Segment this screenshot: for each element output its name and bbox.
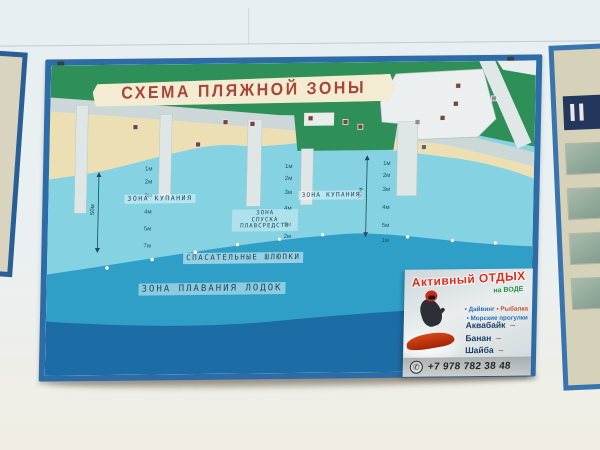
- depth-marker: 3м: [284, 190, 292, 196]
- ad-price-item: Шайба–: [465, 344, 515, 357]
- kiosk-marker: [358, 124, 363, 129]
- beach-zone-sign-board: 50м 50м 1м 2м 3м 4м 5м 7м 1м 2м 3м 4м 5м…: [39, 54, 543, 381]
- right-sign-header: [563, 95, 600, 131]
- photo-of-beach-sign: { "colors":{ "wall":"#e7eff2","wall_lowe…: [0, 0, 600, 450]
- buoy: [105, 266, 109, 270]
- zone-label-launch-line3: ПЛАВСРЕДСТВ: [235, 223, 295, 230]
- price-separator: –: [510, 320, 515, 330]
- right-partial-sign: [549, 42, 600, 390]
- ad-poster: Активный ОТДЫХ на ВОДЕ • Дайвинг • Рыбал…: [403, 268, 533, 376]
- left-partial-sign: [0, 48, 28, 277]
- depth-marker: 7м: [143, 243, 151, 249]
- ad-subtitle: на ВОДЕ: [493, 286, 523, 295]
- buoy: [150, 258, 154, 262]
- kiosk-marker: [343, 119, 348, 124]
- kiosk-marker: [308, 116, 313, 121]
- depth-marker: 1м: [383, 161, 391, 167]
- buoy: [278, 237, 282, 241]
- rider-helmet: [425, 290, 437, 301]
- depth-marker: 5м: [144, 226, 152, 232]
- ad-price-name: Аквабайк: [466, 320, 506, 330]
- zone-label-launch: ЗОНА СПУСКА ПЛАВСРЕДСТВ: [232, 209, 298, 232]
- kiosk-marker: [196, 142, 201, 147]
- depth-marker: 5м: [382, 223, 390, 229]
- right-sign-photo: [571, 277, 600, 311]
- ad-price-item: Банан–: [465, 331, 515, 344]
- kiosk-marker: [415, 120, 420, 125]
- kiosk-marker: [453, 101, 458, 106]
- zone-label-lifeboats: СПАСАТЕЛЬНЫЕ ШЛЮПКИ: [183, 252, 304, 264]
- kiosk-marker: [456, 83, 461, 88]
- ad-price-item: Аквабайк–: [466, 319, 516, 332]
- buoy: [406, 235, 410, 239]
- depth-marker: 1м: [381, 238, 389, 244]
- buoy: [236, 243, 240, 247]
- ad-price-name: Шайба: [465, 345, 494, 355]
- ad-price-name: Банан: [465, 332, 491, 342]
- depth-marker: 2м: [145, 179, 153, 185]
- ad-service-diving: • Дайвинг: [465, 306, 495, 313]
- wall-crack: [248, 8, 249, 44]
- wall-seam: [0, 40, 600, 46]
- depth-marker: 1м: [145, 166, 153, 172]
- phone-icon: ✆: [410, 361, 423, 374]
- right-sign-photo: [567, 187, 600, 221]
- right-sign-photo: [569, 232, 600, 266]
- distance-arrow: [366, 158, 368, 234]
- price-separator: –: [496, 332, 501, 342]
- buoy: [451, 238, 455, 242]
- ad-price-list: Аквабайк– Банан– Шайба–: [465, 319, 515, 357]
- jetski-photo: [403, 289, 464, 356]
- phone-number: +7 978 782 38 48: [427, 361, 511, 373]
- pier: [74, 105, 88, 213]
- kiosk-marker: [250, 121, 255, 126]
- buoy: [494, 241, 498, 245]
- depth-marker: 2м: [383, 173, 391, 179]
- depth-marker: 2м: [285, 176, 293, 182]
- kiosk-marker: [491, 96, 496, 101]
- zone-label-boats: ЗОНА ПЛАВАНИЯ ЛОДОК: [138, 282, 285, 296]
- distance-arrow: [97, 175, 99, 250]
- zone-label-swim-right: ЗОНА КУПАНИЯ: [298, 190, 363, 200]
- pier: [396, 122, 418, 196]
- depth-marker: 3м: [382, 187, 390, 193]
- depth-marker: 2м: [284, 234, 292, 240]
- kiosk-marker: [421, 145, 426, 150]
- kiosk-marker: [440, 115, 445, 120]
- ad-service-fishing: • Рыбалка: [496, 306, 528, 313]
- right-sign-photo: [565, 142, 600, 176]
- kiosk-marker: [133, 125, 138, 130]
- depth-marker: 1м: [285, 164, 293, 170]
- distance-label: 50м: [90, 204, 96, 215]
- depth-marker: 4м: [144, 209, 152, 215]
- zone-label-swim-left: ЗОНА КУПАНИЯ: [124, 194, 195, 204]
- pier: [158, 114, 172, 196]
- depth-marker: 4м: [382, 205, 390, 211]
- kiosk-marker: [223, 120, 228, 125]
- pier: [246, 119, 262, 206]
- buoy: [321, 233, 325, 237]
- price-separator: –: [499, 345, 504, 355]
- phone-strip: ✆ +7 978 782 38 48: [403, 356, 531, 376]
